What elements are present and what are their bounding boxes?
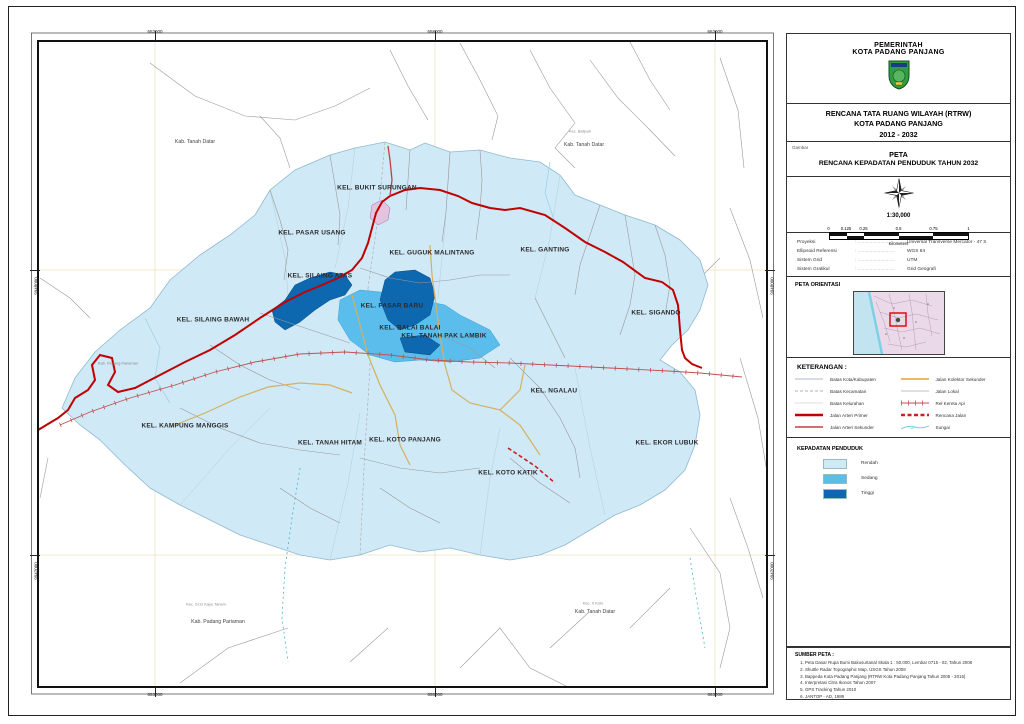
scale-block: 1:30,000 00.1250.250.50.751 Kilometers (787, 177, 1010, 233)
grid-coordinate-label: 9948000 (770, 277, 775, 295)
density-swatch (823, 489, 847, 499)
scale-tick: 0 (827, 226, 829, 231)
source-item: Shuttle Radar Topographic Map, USGS Tahu… (805, 667, 1002, 674)
legend-row: Jalan Kolektor Sekunder (899, 373, 1005, 385)
density-legend-title: KEPADATAN PENDUDUK (797, 446, 1010, 452)
compass-rose-icon (884, 178, 914, 208)
projection-row: Sistem Gratikul : ......................… (797, 265, 1000, 274)
region-label: Kab. Tanah Datar (575, 609, 615, 615)
legend-block: KETERANGAN : Batas Kota/Kabupaten Batas … (787, 358, 1010, 438)
legend-symbol (793, 374, 825, 384)
region-label: Kec. 2x11 Kayu Tanam (186, 602, 226, 607)
orientation-block: PETA ORIENTASI (787, 277, 1010, 358)
kelurahan-label: KEL. BALAI BALAI (379, 325, 440, 332)
legend-row: Rencana Jalan (899, 409, 1005, 421)
orientation-inset-map (853, 291, 945, 355)
panel-header: PEMERINTAH KOTA PADANG PANJANG (787, 34, 1010, 104)
gambar-tag: Gambar (792, 145, 808, 150)
density-legend-row: Tinggi (787, 486, 1010, 501)
kelurahan-label: KEL. GANTING (521, 247, 570, 254)
legend-row: Rel Kereta Api (899, 397, 1005, 409)
scale-ratio: 1:30,000 (787, 213, 1010, 219)
region-label: Kab. Tanah Datar (564, 142, 604, 148)
sources-block: SUMBER PETA : Peta Dasar Rupa Bumi Bakos… (787, 647, 1010, 701)
legend-symbol (899, 398, 931, 408)
sources-title: SUMBER PETA : (795, 652, 1002, 658)
rtrw-title-line3: 2012 - 2032 (787, 130, 1010, 140)
scale-tick: 1 (967, 226, 969, 231)
grid-coordinate-label: 9942000 (34, 562, 39, 580)
scale-tick: 0.25 (859, 226, 867, 231)
kelurahan-label: KEL. SILAING BAWAH (177, 317, 250, 324)
kelurahan-label: KEL. SIGANDO (631, 310, 680, 317)
map-canvas (30, 28, 775, 700)
grid-coordinate-label: 9942000 (770, 562, 775, 580)
projection-row: Proyeksi : ............................ … (797, 238, 1000, 247)
sheet-title-line2: RENCANA KEPADATAN PENDUDUK TAHUN 2032 (787, 160, 1010, 167)
sheet-title-line1: PETA (787, 150, 1010, 159)
scale-tick: 0.5 (896, 226, 902, 231)
legend-title: KETERANGAN : (797, 364, 1010, 371)
legend-symbol (793, 422, 825, 432)
legend-symbol (793, 398, 825, 408)
rtrw-title-line2: KOTA PADANG PANJANG (787, 119, 1010, 129)
map-legend-panel: PEMERINTAH KOTA PADANG PANJANG RENCANA T… (786, 33, 1011, 700)
kelurahan-label: KEL. BUKIT SURUNGAN (337, 185, 417, 192)
legend-row: Batas Kecamatan (793, 385, 899, 397)
grid-coordinate-label: 9948000 (34, 277, 39, 295)
rtrw-title-line1: RENCANA TATA RUANG WILAYAH (RTRW) (787, 109, 1010, 119)
source-item: Peta Dasar Rupa Bumi Bakosurtanal Skala … (805, 660, 1002, 667)
density-swatch (823, 474, 847, 484)
legend-symbol (793, 386, 825, 396)
source-item: Interpretasi Citra Ikonos Tahun 2007 (805, 680, 1002, 687)
source-item: GPS Tracking Tahun 2010 (805, 687, 1002, 694)
grid-tick (715, 31, 716, 41)
grid-tick (435, 31, 436, 41)
region-label: Kec. Batipuh (569, 129, 591, 134)
grid-tick (30, 270, 40, 271)
kelurahan-label: KEL. TANAH PAK LAMBIK (401, 333, 486, 340)
sheet-title-block: Gambar PETA RENCANA KEPADATAN PENDUDUK T… (787, 142, 1010, 177)
region-label: Kab. Padang Pariaman (191, 619, 245, 625)
legend-row: Jalan Arteri Sekunder (793, 421, 899, 433)
kelurahan-label: KEL. NGALAU (531, 388, 578, 395)
region-label: Kab. Tanah Datar (175, 139, 215, 145)
density-legend-row: Sedang (787, 471, 1010, 486)
region-label: Kec. X Koto (583, 601, 604, 606)
grid-tick (155, 687, 156, 697)
government-line2: KOTA PADANG PANJANG (787, 49, 1010, 56)
kelurahan-label: KEL. KOTO KATIK (478, 470, 537, 477)
legend-row: Jalan Lokal (899, 385, 1005, 397)
grid-tick (155, 31, 156, 41)
scale-tick: 0.125 (841, 226, 851, 231)
kelurahan-label: KEL. PASAR BARU (361, 303, 423, 310)
kelurahan-label: KEL. SILAING ATAS (288, 273, 353, 280)
kelurahan-label: KEL. EKOR LUBUK (636, 440, 699, 447)
legend-row: Batas Kota/Kabupaten (793, 373, 899, 385)
orientation-title: PETA ORIENTASI (795, 282, 1010, 288)
projection-block: Proyeksi : ............................ … (787, 233, 1010, 277)
kelurahan-label: KEL. PASAR USANG (278, 230, 345, 237)
legend-symbol (899, 410, 931, 420)
legend-symbol (899, 386, 931, 396)
map-area: KEL. BUKIT SURUNGANKEL. PASAR USANGKEL. … (30, 28, 775, 700)
map-title-block: RENCANA TATA RUANG WILAYAH (RTRW) KOTA P… (787, 104, 1010, 142)
grid-tick (765, 270, 775, 271)
density-legend-row: Rendah (787, 456, 1010, 471)
legend-symbol (899, 422, 931, 432)
grid-tick (435, 687, 436, 697)
grid-tick (765, 555, 775, 556)
projection-row: Sistem Grid : ..........................… (797, 256, 1000, 265)
region-label: Kab. Padang Pariaman (98, 361, 138, 366)
projection-row: Ellipsoid Referensi : ..................… (797, 247, 1000, 256)
government-line1: PEMERINTAH (787, 42, 1010, 49)
density-legend-block: KEPADATAN PENDUDUK Rendah Sedang Tinggi (787, 438, 1010, 647)
grid-tick (30, 555, 40, 556)
density-swatch (823, 459, 847, 469)
scale-tick: 0.75 (929, 226, 937, 231)
legend-row: Jalan Arteri Primer (793, 409, 899, 421)
kelurahan-label: KEL. KAMPUNG MANGGIS (141, 423, 228, 430)
legend-symbol (793, 410, 825, 420)
source-item: Bappeda Kota Padang Panjang (RTRW Kota P… (805, 674, 1002, 681)
legend-symbol (899, 374, 931, 384)
kelurahan-label: KEL. KOTO PANJANG (369, 437, 441, 444)
source-item: JANTOP - AD, 1989 (805, 694, 1002, 701)
city-crest-logo (886, 58, 912, 90)
kelurahan-label: KEL. GUGUK MALINTANG (389, 250, 474, 257)
kelurahan-label: KEL. TANAH HITAM (298, 440, 362, 447)
legend-row: Batas Kelurahan (793, 397, 899, 409)
legend-row: Sungai (899, 421, 1005, 433)
grid-tick (715, 687, 716, 697)
